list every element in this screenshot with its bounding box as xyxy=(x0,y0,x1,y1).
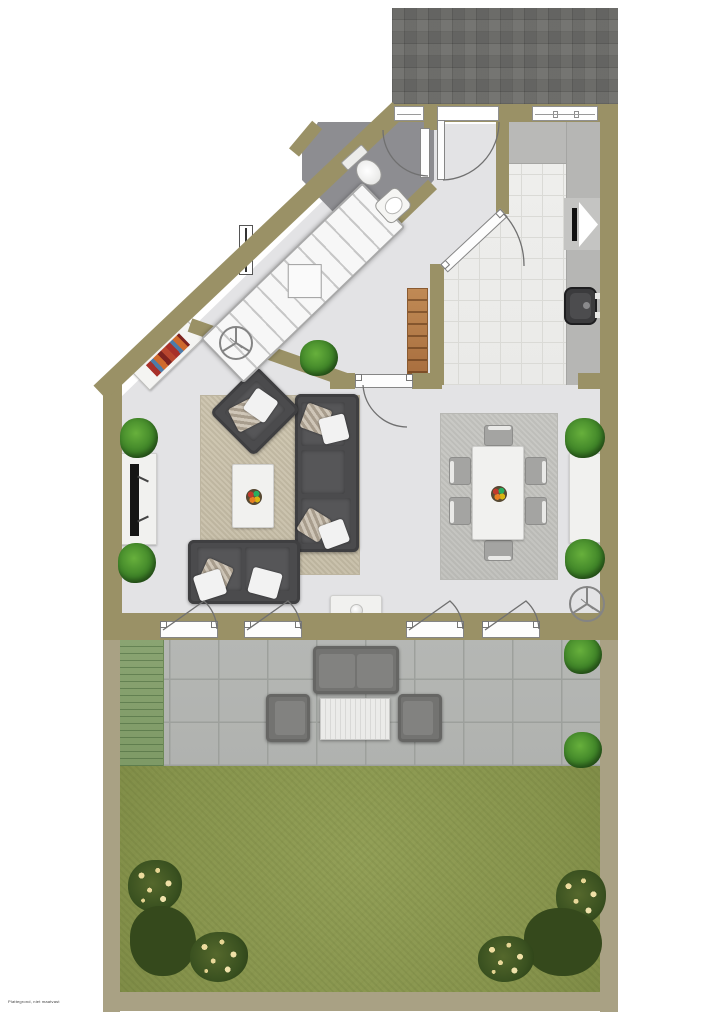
outdoor-coffee-table xyxy=(320,698,390,740)
fruit-bowl xyxy=(491,486,507,502)
sofa-right-section xyxy=(295,394,359,552)
flower-bush-red xyxy=(524,908,602,976)
fruit-bowl xyxy=(246,489,262,505)
tv-sideboard xyxy=(119,453,157,545)
window-kitchen xyxy=(532,106,598,121)
dining-table xyxy=(472,446,524,540)
window-mullion xyxy=(574,111,579,118)
deck-strip xyxy=(120,638,164,766)
wall-hall-living-a xyxy=(330,373,355,389)
garden-fence-right xyxy=(600,632,618,1012)
loveseat xyxy=(188,540,300,604)
living-door-frame xyxy=(355,374,413,388)
garden-fence-bottom xyxy=(103,992,618,1011)
floor-plan: Plattegrond, niet maatvast xyxy=(0,0,724,1024)
wooden-shelf-cabinet xyxy=(407,288,428,374)
sink-drain xyxy=(583,302,590,309)
outdoor-sofa-cushion xyxy=(319,654,355,688)
wall-kitchen-hall-upper xyxy=(496,122,509,214)
washbasin-bowl xyxy=(381,193,406,218)
outdoor-chair-right xyxy=(398,694,442,742)
window-mullion xyxy=(553,111,558,118)
kitchen-appliance xyxy=(564,198,600,250)
dining-chair xyxy=(449,497,471,525)
wall-kitchen-dining-stub xyxy=(578,373,602,389)
wall-kitchen-hall-lower xyxy=(430,264,444,385)
brick-driveway xyxy=(392,8,618,104)
dining-chair xyxy=(525,497,547,525)
outdoor-chair-left xyxy=(266,694,310,742)
outdoor-chair-cushion xyxy=(275,701,305,735)
outdoor-sofa xyxy=(313,646,399,694)
appliance-door-bar xyxy=(572,208,577,241)
stair-landing xyxy=(288,264,322,298)
terrace-door-threshold xyxy=(244,621,302,638)
front-door-threshold xyxy=(437,106,499,121)
coffee-table xyxy=(232,464,274,528)
terrace-door-threshold xyxy=(482,621,540,638)
outdoor-sofa-cushion xyxy=(357,654,393,688)
bathroom-door-leaf xyxy=(420,128,430,178)
garden-fence-left xyxy=(103,632,120,1012)
dining-chair xyxy=(484,540,513,561)
dining-chair xyxy=(525,457,547,485)
terrace-door-threshold xyxy=(160,621,218,638)
outdoor-chair-cushion xyxy=(403,701,433,735)
front-door-leaf xyxy=(437,120,445,180)
window-small-front xyxy=(394,106,424,121)
dining-chair xyxy=(449,457,471,485)
flower-bush-red xyxy=(130,906,196,976)
kitchen-sink xyxy=(564,287,597,325)
dining-chair xyxy=(484,425,513,446)
watermark-text: Plattegrond, niet maatvast xyxy=(8,999,60,1004)
kitchen-counter-right xyxy=(566,122,600,385)
appliance-wedge xyxy=(579,202,598,247)
throw-pillow xyxy=(318,413,350,445)
sofa-cushion xyxy=(301,450,345,494)
wall-left xyxy=(103,380,122,632)
terrace-door-threshold xyxy=(406,621,464,638)
